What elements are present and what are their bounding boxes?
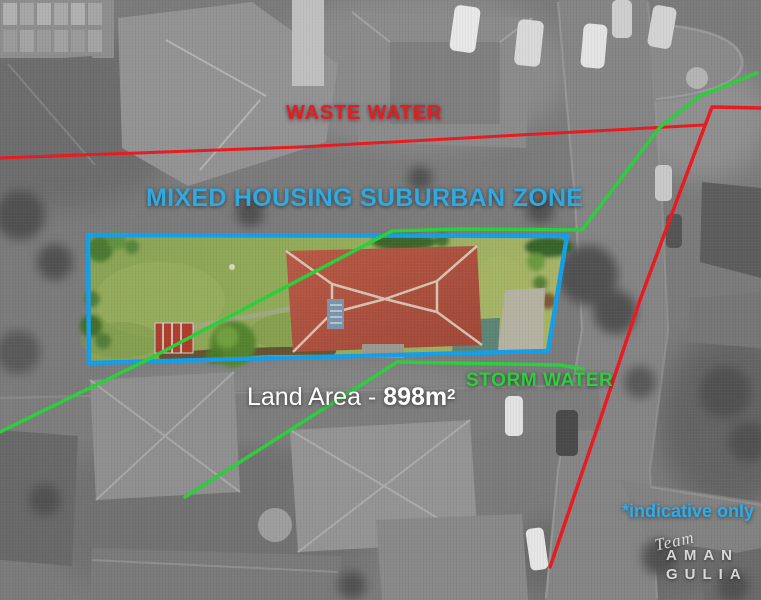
- carport-grid: [0, 0, 114, 58]
- agent-watermark: Team AMAN GULIA: [652, 526, 748, 584]
- property-parcel: [80, 232, 573, 367]
- land-area-value: 898m: [383, 383, 447, 411]
- watermark-name-line2: GULIA: [666, 565, 748, 584]
- land-area-label: Land Area - 898m2: [247, 383, 456, 412]
- waste-water-label: WASTE WATER: [286, 102, 442, 125]
- zoning-label: MIXED HOUSING SUBURBAN ZONE: [146, 184, 583, 213]
- storm-water-label: STORM WATER: [466, 370, 613, 392]
- annotated-aerial-property-image: WASTE WATER MIXED HOUSING SUBURBAN ZONE …: [0, 0, 761, 600]
- house-red-roof: [286, 246, 482, 358]
- land-area-superscript: 2: [447, 386, 455, 403]
- land-area-prefix: Land Area -: [247, 383, 383, 411]
- concrete-path: [498, 288, 545, 352]
